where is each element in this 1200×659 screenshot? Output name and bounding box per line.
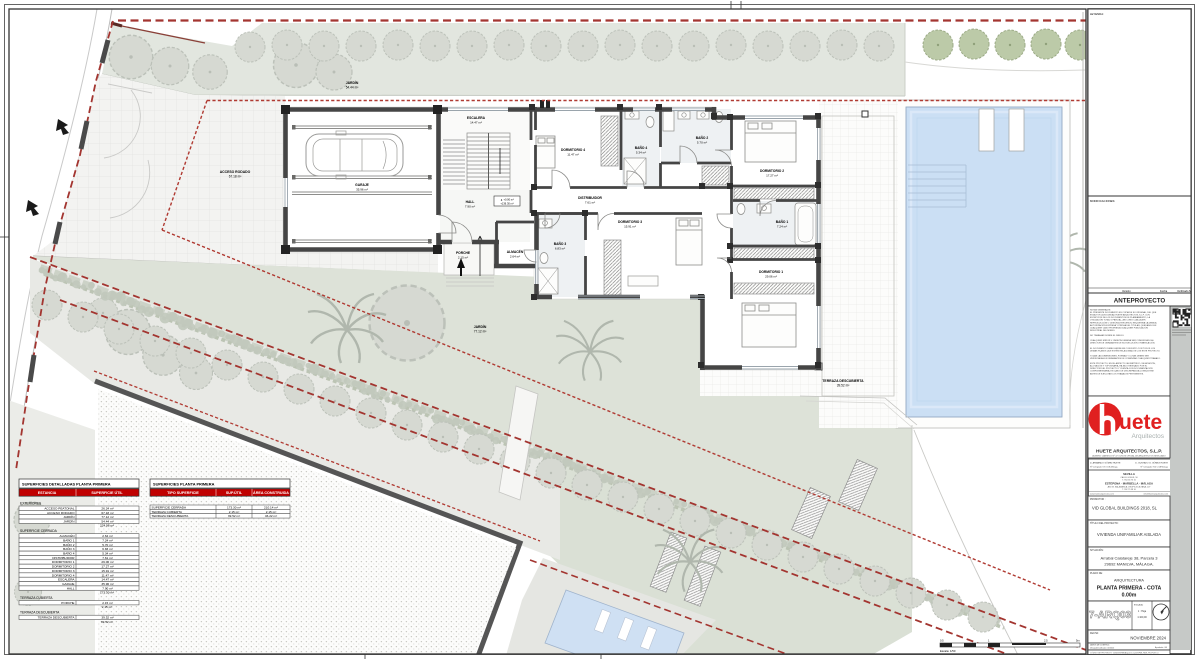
svg-text:SUPERFICIES DETALLADAS PLANTA: SUPERFICIES DETALLADAS PLANTA PRIMERA (22, 481, 111, 486)
svg-text:Fecha: Fecha (1160, 289, 1168, 293)
svg-text:67.18 m²: 67.18 m² (229, 175, 242, 179)
svg-text:1 : Hoja: 1 : Hoja (1138, 610, 1147, 613)
svg-text:224.98 m²: 224.98 m² (100, 524, 114, 528)
svg-text:AUTORIZACIÓN EXPRESA Y PREVIA: AUTORIZACIÓN EXPRESA Y PREVIA DEL TITULA… (1090, 324, 1157, 327)
svg-text:Arrabal Calatareje 38, Parcela: Arrabal Calatareje 38, Parcela 3 (1101, 556, 1159, 561)
svg-text:T. 952 79 58 10: T. 952 79 58 10 (1122, 489, 1137, 491)
svg-text:PLANTA PRIMERA - COTA: PLANTA PRIMERA - COTA (1097, 586, 1162, 592)
svg-text:BAÑO 4: BAÑO 4 (63, 551, 75, 556)
svg-text:39.52 m²: 39.52 m² (837, 384, 850, 388)
svg-text:SEVILLA: SEVILLA (1123, 472, 1135, 476)
svg-text:DORMITORIO 4: DORMITORIO 4 (561, 148, 585, 152)
svg-text:5.34 m²: 5.34 m² (636, 151, 646, 155)
svg-text:www.huetearquitectos.com: www.huetearquitectos.com (1090, 493, 1114, 496)
svg-text:ARQUITECTURA: ARQUITECTURA (1114, 579, 1144, 583)
svg-text:0.00m: 0.00m (1122, 593, 1137, 599)
svg-text:Verificado: Verificado (1177, 289, 1189, 293)
svg-text:HALL: HALL (67, 586, 75, 590)
svg-text:HALL: HALL (466, 200, 475, 204)
svg-text:ACCESO RODADO: ACCESO RODADO (220, 170, 251, 174)
svg-text:15.91 m²: 15.91 m² (624, 225, 636, 229)
svg-text:DISTRIBUIDOR: DISTRIBUIDOR (578, 196, 602, 200)
svg-text:uete: uete (1119, 411, 1162, 434)
svg-text:7.90 m²: 7.90 m² (465, 205, 475, 209)
svg-text:▲ +0.00 m²: ▲ +0.00 m² (500, 198, 514, 202)
svg-text:173.30 m²: 173.30 m² (100, 591, 114, 595)
svg-text:ANTEPROYECTO: ANTEPROYECTO (1114, 298, 1166, 305)
svg-text:7-ARQ03: 7-ARQ03 (1089, 610, 1132, 621)
svg-text:77.12 m²: 77.12 m² (474, 330, 487, 334)
svg-text:D. GUSTAVO G. GÓMEZ HUETE: D. GUSTAVO G. GÓMEZ HUETE (1135, 462, 1168, 465)
svg-text:2.15 m²: 2.15 m² (458, 256, 468, 260)
svg-text:5.70 m²: 5.70 m² (697, 141, 707, 145)
svg-text:29692 MANILVA, MÁLAGA.: 29692 MANILVA, MÁLAGA. (1104, 562, 1153, 567)
svg-text:14.47 m²: 14.47 m² (470, 121, 482, 125)
svg-text:NOTAS GENERALES:: NOTAS GENERALES: (1090, 309, 1111, 312)
svg-text:7.61 m²: 7.61 m² (585, 201, 595, 205)
svg-text:COMPLEMENTARIA; EN CASO DE DIS: COMPLEMENTARIA; EN CASO DE DISCREPANCIA … (1090, 370, 1154, 373)
svg-text:29.06 m²: 29.06 m² (765, 275, 777, 279)
svg-text:CÓDIGO DE PROYECTO: 123456/GRM: CÓDIGO DE PROYECTO: 123456/GRM/Arquitect… (1090, 651, 1159, 654)
svg-text:DEMÁS PLANOS QUE ESTÉN RELACIO: DEMÁS PLANOS QUE ESTÉN RELACIONADOS CON … (1090, 349, 1160, 352)
svg-text:2.15 m²: 2.15 m² (102, 605, 113, 609)
svg-text:Nº Colegiado 914 COA Málaga: Nº Colegiado 914 COA Málaga (1140, 466, 1168, 469)
svg-text:N: N (1189, 289, 1191, 293)
svg-text:JARDÍN: JARDÍN (474, 324, 487, 329)
svg-text:Arquitectos: Arquitectos (1131, 433, 1164, 440)
svg-text:ÁREA CONSTRUIDA: ÁREA CONSTRUIDA (253, 490, 289, 495)
svg-text:SUP.ÚTIL: SUP.ÚTIL (226, 490, 243, 495)
svg-text:JARDÍN: JARDÍN (63, 519, 74, 523)
svg-text:TIPO SUPERFICIE: TIPO SUPERFICIE (167, 491, 199, 495)
svg-text:CALLE GOLES, 56: CALLE GOLES, 56 (1120, 476, 1138, 479)
svg-text:NOVIEMBRE 2024: NOVIEMBRE 2024 (1130, 636, 1166, 641)
svg-text:54.44 m²: 54.44 m² (346, 86, 359, 90)
svg-text:JARDÍN: JARDÍN (346, 80, 359, 85)
svg-text:ESCALA:: ESCALA: (1134, 604, 1144, 607)
svg-text:35.96 m²: 35.96 m² (356, 188, 368, 192)
svg-text:1:100,00: 1:100,00 (1137, 616, 1147, 619)
svg-text:MODIFICACIONES:: MODIFICACIONES: (1090, 199, 1115, 203)
svg-text:39.52 m²: 39.52 m² (101, 620, 113, 624)
svg-text:AVD M. SALAMANCA 1 EDIFICIO AL: AVD M. SALAMANCA 1 EDIFICIO ALTANA, 107 (1108, 485, 1152, 488)
svg-text:TERRAZA DESCUBIERTA: TERRAZA DESCUBIERTA (20, 611, 60, 615)
svg-text:VIVIENDA UNIFAMILIAR AISLADA: VIVIENDA UNIFAMILIAR AISLADA (1097, 532, 1161, 537)
svg-text:5m: 5m (1076, 639, 1080, 643)
svg-text:2.64 m²: 2.64 m² (510, 255, 520, 259)
svg-text:ESTANCIA: ESTANCIA (38, 491, 57, 495)
svg-text:PLANO DE:: PLANO DE: (1090, 572, 1103, 575)
svg-text:VID GLOBAL BUILDINGS 2018, SL: VID GLOBAL BUILDINGS 2018, SL (1092, 506, 1158, 511)
svg-text:BAÑO 3: BAÑO 3 (554, 241, 567, 246)
svg-text:D. ARMANDO GÓMEZ HUETE: D. ARMANDO GÓMEZ HUETE (1090, 462, 1121, 465)
svg-text:TERRAZA DESCUBIERTA: TERRAZA DESCUBIERTA (38, 616, 76, 620)
svg-text:2.5: 2.5 (1044, 639, 1048, 643)
svg-text:0.5: 0.5 (940, 639, 944, 643)
svg-text:BAÑO 2: BAÑO 2 (63, 542, 75, 547)
svg-text:BAÑO 3: BAÑO 3 (63, 546, 75, 551)
svg-text:Versión: Versión (1122, 289, 1131, 293)
svg-text:7.24 m²: 7.24 m² (777, 225, 787, 229)
svg-text:DATOS DE CONTROL:: DATOS DE CONTROL: (1090, 644, 1110, 647)
svg-text:GARAJE: GARAJE (355, 183, 370, 187)
svg-text:ANTES DE EJECUTAR LOS TRABAJOS: ANTES DE EJECUTAR LOS TRABAJOS PERTINENT… (1090, 372, 1144, 375)
svg-text:SUPERFICIES PLANTA PRIMERA: SUPERFICIES PLANTA PRIMERA (153, 481, 215, 486)
svg-text:ES AUTOR LA SOCIEDAD HUETE ARQ: ES AUTOR LA SOCIEDAD HUETE ARQUITECTOS, … (1090, 314, 1150, 317)
svg-text:Aprobado: GE: Aprobado: GE (1155, 646, 1168, 649)
svg-text:ACOTACIÓN Y TOPOGRAFÍA, HA SID: ACOTACIÓN Y TOPOGRAFÍA, HA SIDO REVISADO… (1090, 365, 1148, 368)
svg-text:BAÑO 4: BAÑO 4 (635, 145, 648, 150)
svg-text:DORMITORIO 1: DORMITORIO 1 (759, 270, 783, 274)
svg-text:46.22 m²: 46.22 m² (265, 514, 277, 518)
svg-text:TÍTULO DEL PROYECTO:: TÍTULO DEL PROYECTO: (1090, 522, 1119, 525)
svg-text:info@huetearquitectos.com: info@huetearquitectos.com (1144, 493, 1169, 496)
svg-text:TODAS LAS DIMENSIONES, FORMAS: TODAS LAS DIMENSIONES, FORMAS Y COTAS DE… (1090, 354, 1149, 357)
svg-text:EXTERIORES: EXTERIORES (20, 502, 42, 506)
svg-text:TERRAZA CUBIERTA: TERRAZA CUBIERTA (20, 596, 53, 600)
svg-text:ESCALERA: ESCALERA (467, 116, 486, 120)
svg-text:ESTEPONA - MARBELLA - MÁLAGA: ESTEPONA - MARBELLA - MÁLAGA (1105, 481, 1153, 486)
svg-text:PROMOTOR :: PROMOTOR : (1090, 498, 1106, 501)
svg-text:11.47 m²: 11.47 m² (567, 153, 579, 157)
svg-text:INDUSTRIAL DEL MISMO.: INDUSTRIAL DEL MISMO. (1090, 329, 1115, 332)
svg-text:DORMITORIO 3: DORMITORIO 3 (618, 220, 642, 224)
svg-text:BAÑO 1: BAÑO 1 (776, 219, 789, 224)
svg-text:SUPERFICIE CERRADA: SUPERFICIE CERRADA (20, 529, 58, 533)
svg-text:TERRAZA DESCUBIERTA: TERRAZA DESCUBIERTA (152, 514, 190, 518)
svg-text:UTILIZACIÓN TOTAL O PARCIAL, A: UTILIZACIÓN TOTAL O PARCIAL, ASÍ COMO CU… (1090, 319, 1146, 322)
svg-text:+136.30 m²: +136.30 m² (500, 202, 513, 206)
svg-text:FECHA:: FECHA: (1090, 632, 1099, 635)
svg-text:39.52 m²: 39.52 m² (228, 514, 240, 518)
svg-text:Nº Colegiado 720 COA Málaga: Nº Colegiado 720 COA Málaga (1090, 466, 1118, 469)
svg-text:TERRAZA DESCUBIERTA: TERRAZA DESCUBIERTA (822, 379, 864, 383)
svg-text:ACEBRO CANSECO Nº 47 OLIVOS OF: ACEBRO CANSECO Nº 47 OLIVOS OFICIAL DE A… (1092, 455, 1166, 458)
svg-text:LEYENDA:: LEYENDA: (1090, 12, 1104, 16)
svg-text:SUPERFICIE ÚTIL: SUPERFICIE ÚTIL (91, 490, 123, 495)
svg-text:Dibujado/Calificado: 001/002: Dibujado/Calificado: 001/002 (1090, 648, 1114, 650)
svg-text:HUETE ARQUITECTOS, S.L.P.: HUETE ARQUITECTOS, S.L.P. (1096, 449, 1162, 454)
svg-text:PORCHE: PORCHE (456, 251, 471, 255)
svg-text:17.27 m²: 17.27 m² (766, 174, 778, 178)
svg-text:PORCHE: PORCHE (61, 601, 74, 605)
svg-text:DORMITORIO 2: DORMITORIO 2 (760, 169, 784, 173)
svg-text:CUALQUIER ERROR U OMISIÓN DEBE: CUALQUIER ERROR U OMISIÓN DEBERÁ SER COM… (1090, 339, 1155, 342)
svg-text:VERIFICADAS EN OBRA ANTES DE C: VERIFICADAS EN OBRA ANTES DE COMENZAR CU… (1090, 357, 1161, 360)
svg-text:SITUACIÓN:: SITUACIÓN: (1090, 549, 1104, 552)
svg-text:ALMACÉN: ALMACÉN (507, 249, 524, 254)
svg-text:NO TRABAJAR SOBRE EL DIBUJO.: NO TRABAJAR SOBRE EL DIBUJO. (1090, 334, 1125, 337)
svg-text:DIRECTOR DE OBRA ANTES DE SU E: DIRECTOR DE OBRA ANTES DE SU EJECUCIÓN O… (1090, 342, 1155, 345)
svg-text:BAÑO 1: BAÑO 1 (63, 537, 75, 542)
svg-text:ALMACÉN: ALMACÉN (60, 533, 75, 538)
svg-text:Escala: 1/50: Escala: 1/50 (940, 649, 956, 653)
svg-text:BAÑO 2: BAÑO 2 (696, 135, 709, 140)
svg-text:6.83 m²: 6.83 m² (555, 247, 565, 251)
